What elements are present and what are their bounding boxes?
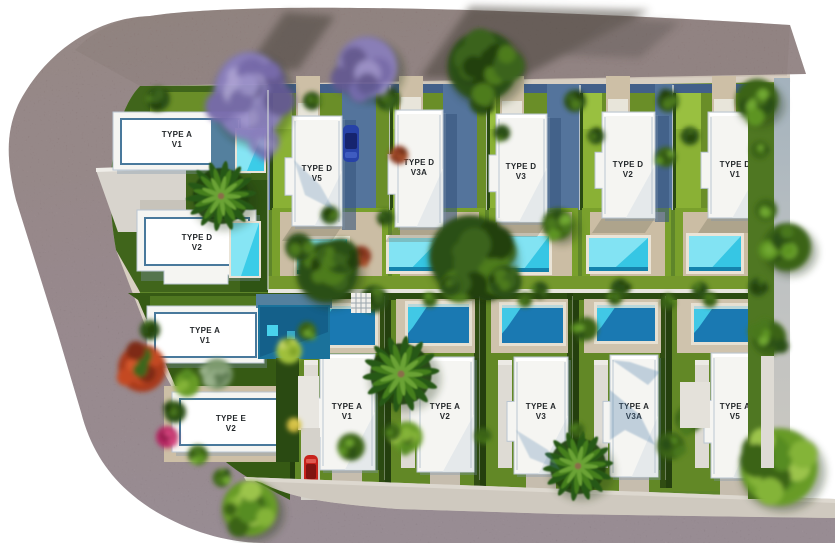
svg-text:V3: V3	[516, 172, 527, 181]
svg-text:V2: V2	[192, 243, 203, 252]
svg-text:V2: V2	[226, 424, 237, 433]
svg-text:TYPE D: TYPE D	[613, 160, 644, 169]
svg-text:TYPE A: TYPE A	[190, 326, 220, 335]
svg-text:TYPE A: TYPE A	[332, 402, 362, 411]
svg-text:TYPE A: TYPE A	[430, 402, 460, 411]
svg-text:TYPE A: TYPE A	[162, 130, 192, 139]
svg-text:TYPE D: TYPE D	[404, 158, 435, 167]
svg-text:TYPE D: TYPE D	[182, 233, 213, 242]
svg-text:V2: V2	[440, 412, 451, 421]
svg-text:TYPE E: TYPE E	[216, 414, 247, 423]
svg-text:TYPE D: TYPE D	[720, 160, 751, 169]
svg-text:V1: V1	[200, 336, 211, 345]
svg-text:TYPE D: TYPE D	[302, 164, 333, 173]
svg-text:TYPE D: TYPE D	[506, 162, 537, 171]
svg-text:V3A: V3A	[411, 168, 427, 177]
svg-text:TYPE A: TYPE A	[526, 402, 556, 411]
svg-text:V2: V2	[623, 170, 634, 179]
svg-text:V5: V5	[730, 412, 741, 421]
svg-text:TYPE A: TYPE A	[720, 402, 750, 411]
svg-text:V1: V1	[730, 170, 741, 179]
svg-text:V1: V1	[342, 412, 353, 421]
svg-text:V1: V1	[172, 140, 183, 149]
svg-text:V3: V3	[536, 412, 547, 421]
